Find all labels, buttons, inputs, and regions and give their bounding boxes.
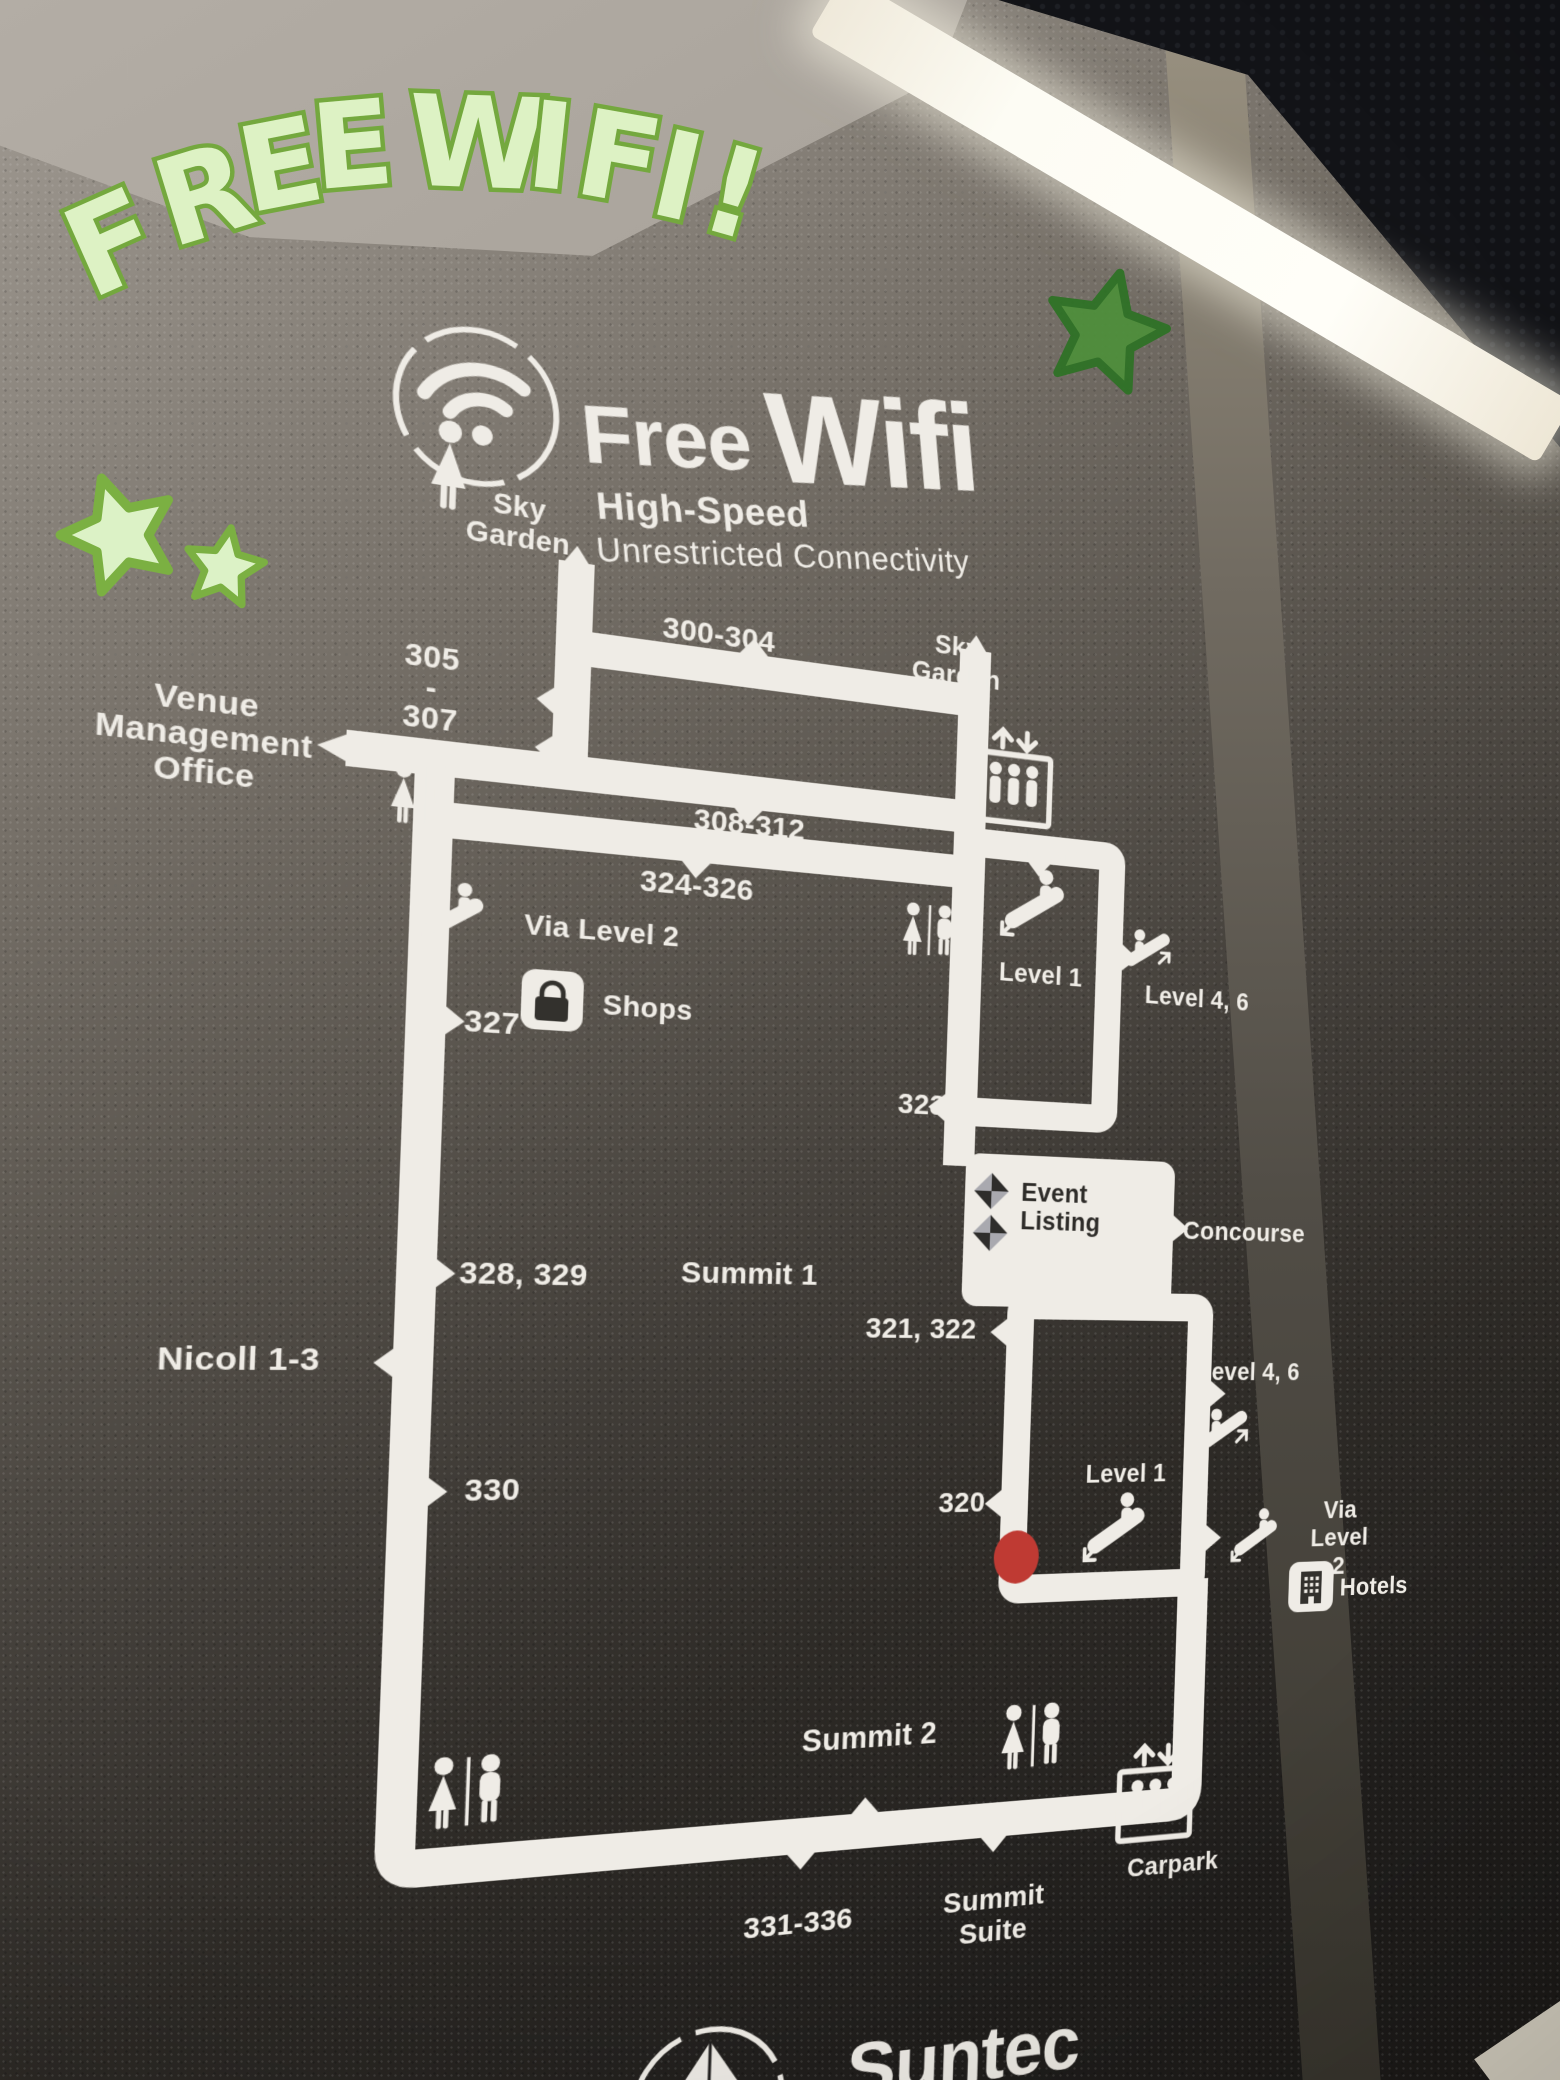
label-nicoll-1-3: Nicoll 1-3 — [156, 1341, 320, 1378]
star-doodle-icon — [1020, 248, 1190, 418]
label-room-323: 323 — [897, 1088, 946, 1123]
label-summit-suite: Summit Suite — [942, 1879, 1045, 1954]
wayfinding-sign: Free Wifi High-Speed Unrestricted Connec… — [71, 174, 1425, 2080]
label-hotels: Hotels — [1339, 1571, 1408, 1602]
label-shops: Shops — [602, 989, 693, 1027]
star-doodle-icon — [168, 512, 280, 624]
wall-sign-photo: F R E E W I F I ! — [0, 0, 1560, 2080]
restroom-icon — [902, 902, 952, 958]
logo-tagline-1: High-Speed — [595, 485, 811, 536]
label-level-4-6-mid: Level 4, 6 — [1197, 1358, 1300, 1386]
label-rooms-321-322: 321, 322 — [865, 1312, 977, 1346]
restroom-icon — [1001, 1702, 1061, 1770]
sticker-letter: E — [306, 73, 398, 218]
label-summit-1: Summit 1 — [680, 1256, 818, 1292]
label-event-listing: Event Listing — [1020, 1178, 1102, 1238]
level1-lower-loop — [1012, 1305, 1201, 1590]
logo-free-text: Free — [577, 387, 754, 490]
escalator-down-icon — [1232, 1508, 1280, 1561]
suntec-emblem-icon — [630, 2021, 785, 2080]
label-rooms-305-307: 305 - 307 — [402, 639, 460, 737]
label-room-327: 327 — [463, 1004, 520, 1043]
label-level-1-mid: Level 1 — [1085, 1459, 1166, 1488]
logo-tagline-2: Unrestricted Connectivity — [594, 530, 971, 580]
escalator-down-icon — [1002, 866, 1068, 939]
label-concourse: Concourse — [1182, 1216, 1305, 1248]
shops-icon — [520, 968, 584, 1032]
label-sky-garden-right: Sky Garden — [911, 626, 1001, 696]
label-room-320: 320 — [938, 1487, 986, 1520]
escalator-up-icon — [1123, 928, 1173, 972]
label-rooms-328-329: 328, 329 — [458, 1256, 588, 1294]
label-via-level-2-hotels: Via Level 2 — [1309, 1495, 1369, 1580]
restroom-icon — [428, 1753, 502, 1830]
label-room-330: 330 — [464, 1473, 521, 1509]
escalator-down-icon — [1084, 1492, 1148, 1560]
